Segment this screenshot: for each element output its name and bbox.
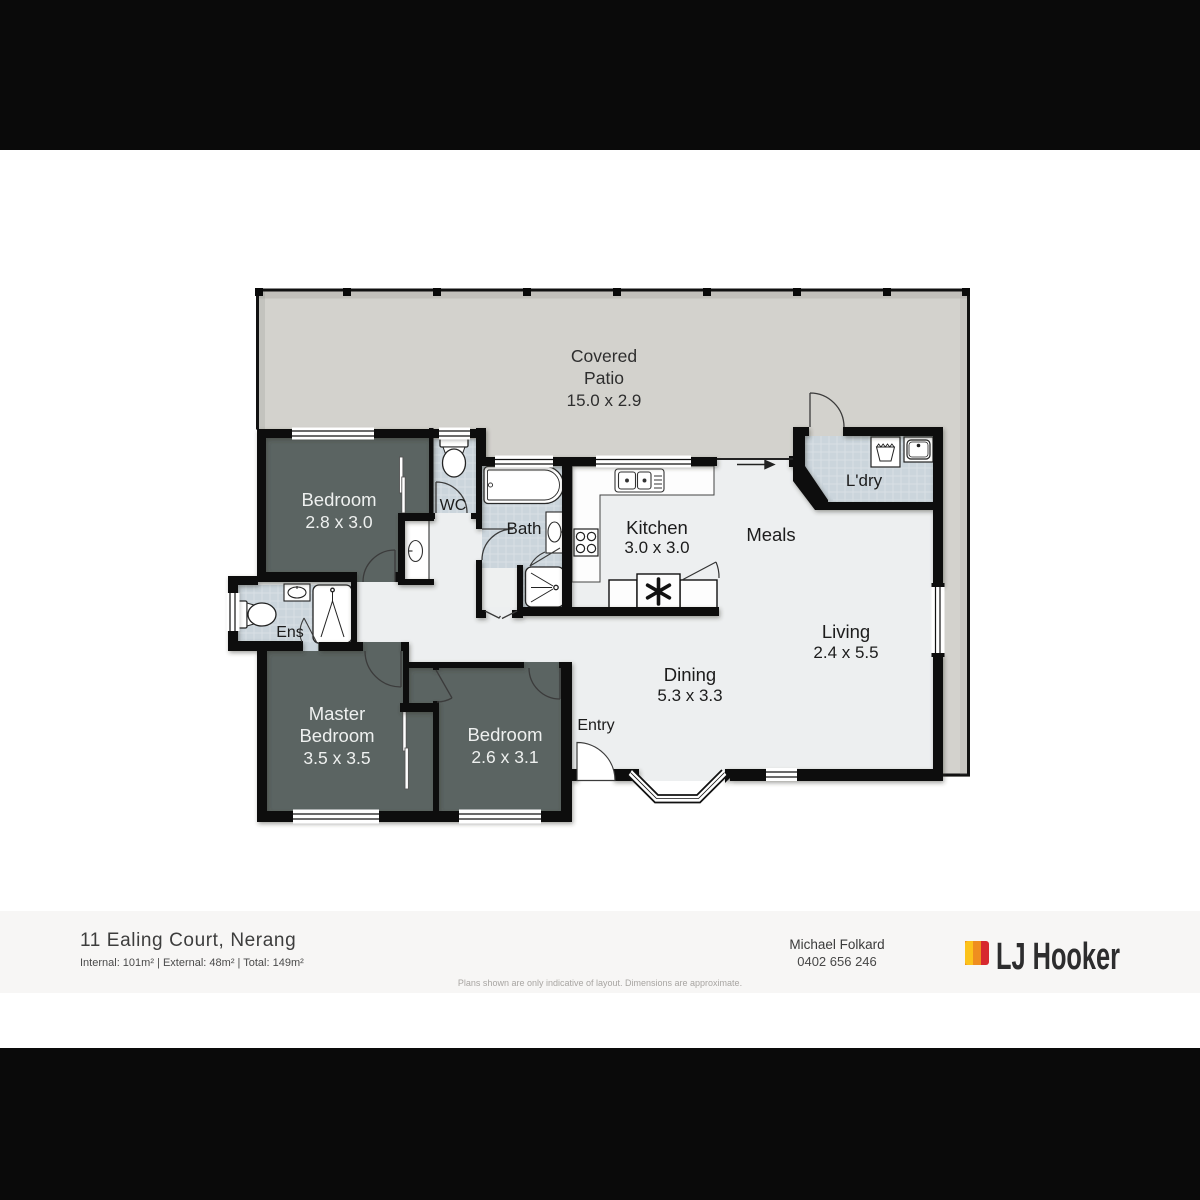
svg-text:Meals: Meals bbox=[746, 524, 795, 545]
svg-text:Living: Living bbox=[822, 621, 870, 642]
svg-text:Bath: Bath bbox=[507, 519, 542, 538]
svg-text:11 Ealing Court, Nerang: 11 Ealing Court, Nerang bbox=[80, 930, 296, 951]
svg-text:2.8 x 3.0: 2.8 x 3.0 bbox=[305, 512, 372, 532]
svg-text:15.0 x 2.9: 15.0 x 2.9 bbox=[567, 391, 642, 410]
svg-text:3.0 x 3.0: 3.0 x 3.0 bbox=[624, 538, 689, 557]
svg-text:Patio: Patio bbox=[584, 368, 624, 388]
svg-text:Covered: Covered bbox=[571, 346, 637, 366]
svg-text:WC: WC bbox=[440, 497, 467, 514]
svg-text:Dining: Dining bbox=[664, 664, 716, 685]
svg-text:0402 656 246: 0402 656 246 bbox=[797, 954, 877, 969]
svg-text:LJ Hooker: LJ Hooker bbox=[996, 936, 1120, 978]
svg-text:Bedroom: Bedroom bbox=[301, 489, 376, 510]
svg-text:Master: Master bbox=[309, 703, 366, 724]
svg-text:Kitchen: Kitchen bbox=[626, 517, 688, 538]
svg-text:Michael Folkard: Michael Folkard bbox=[789, 937, 884, 952]
svg-text:Internal: 101m² | External: 48: Internal: 101m² | External: 48m² | Total… bbox=[80, 957, 304, 969]
svg-text:Entry: Entry bbox=[577, 717, 614, 734]
svg-text:3.5 x 3.5: 3.5 x 3.5 bbox=[303, 748, 370, 768]
svg-text:Plans shown are only indicativ: Plans shown are only indicative of layou… bbox=[458, 978, 742, 988]
svg-text:5.3 x 3.3: 5.3 x 3.3 bbox=[657, 686, 722, 705]
svg-text:Bedroom: Bedroom bbox=[467, 724, 542, 745]
svg-text:2.4 x 5.5: 2.4 x 5.5 bbox=[813, 643, 878, 662]
svg-text:2.6 x 3.1: 2.6 x 3.1 bbox=[471, 747, 538, 767]
svg-text:L'dry: L'dry bbox=[846, 471, 883, 490]
svg-text:Ens: Ens bbox=[276, 624, 304, 641]
svg-text:Bedroom: Bedroom bbox=[299, 725, 374, 746]
